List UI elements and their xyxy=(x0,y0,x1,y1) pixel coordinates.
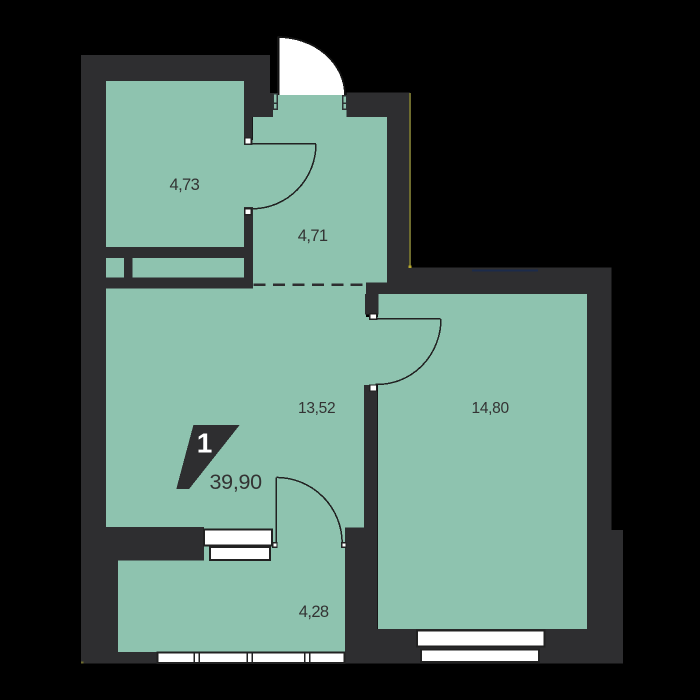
svg-text:13,52: 13,52 xyxy=(298,400,335,417)
svg-text:4,28: 4,28 xyxy=(299,603,329,621)
svg-text:1: 1 xyxy=(197,427,213,458)
svg-text:39,90: 39,90 xyxy=(210,470,263,494)
svg-text:4,71: 4,71 xyxy=(298,227,328,245)
svg-text:4,73: 4,73 xyxy=(170,176,200,194)
svg-text:14,80: 14,80 xyxy=(472,400,510,417)
